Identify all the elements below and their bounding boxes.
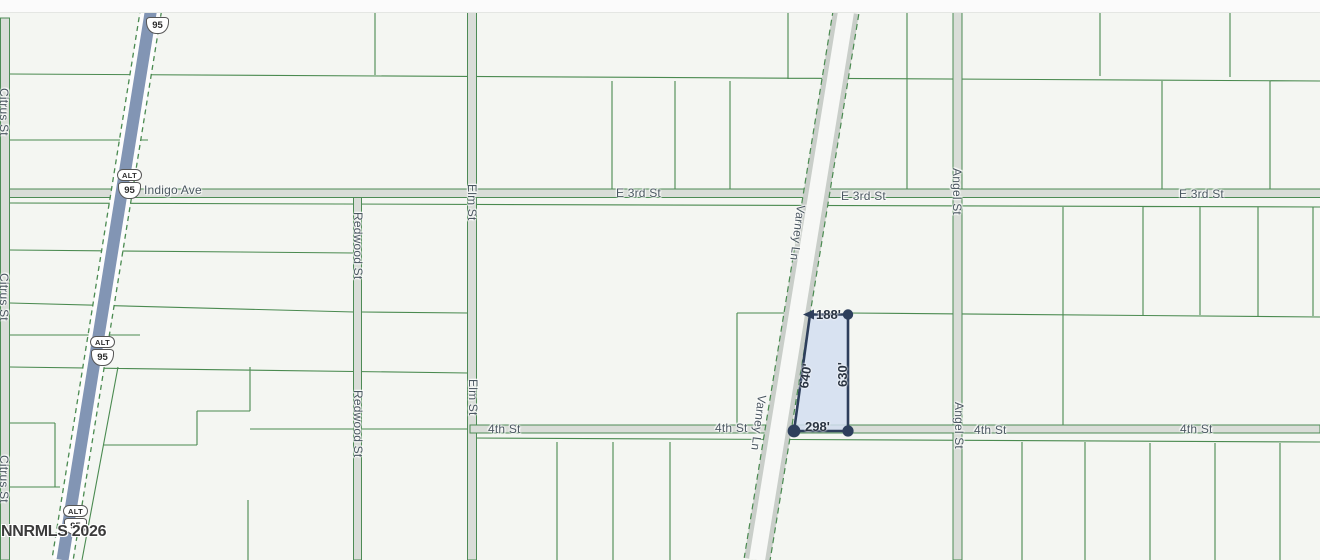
street-label-e-3rd-st-1: E 3rd St: [616, 186, 661, 200]
parcel-lines-layer: [10, 13, 1320, 560]
parcel-vertex-dot: [842, 425, 853, 436]
street-label-angel-st-1: Angel St: [950, 168, 964, 215]
street-label-indigo-ave: Indigo Ave: [144, 183, 202, 197]
street-label-4th-st-4: 4th St: [1180, 422, 1213, 436]
street-label-citrus-st-3: Citrus St: [0, 455, 11, 503]
dimension-label-bottom: 298': [805, 419, 830, 434]
parcel-vertex-dot: [843, 309, 853, 319]
map-canvas: [0, 0, 1320, 560]
alt-banner-icon: ALT: [90, 336, 115, 348]
dimension-label-top: 188': [816, 307, 841, 322]
road-e-3rd-st: [10, 189, 1320, 198]
road-angel-st: [953, 12, 962, 560]
dimension-label-right: 630': [835, 362, 850, 387]
parcel-vertex-dot: [788, 425, 801, 438]
street-label-4th-st-2: 4th St: [715, 421, 748, 435]
roads-layer: [1, 12, 1320, 560]
parcel-map[interactable]: Citrus St Citrus St Citrus St Indigo Ave…: [0, 0, 1320, 560]
street-label-citrus-st-1: Citrus St: [0, 88, 11, 136]
alt-banner-icon: ALT: [63, 505, 88, 517]
street-label-e-3rd-st-3: E 3rd St: [1179, 187, 1224, 201]
street-label-citrus-st-2: Citrus St: [0, 273, 11, 321]
image-top-strip: [0, 0, 1320, 13]
street-label-e-3rd-st-2: E 3rd St: [841, 189, 886, 203]
street-label-elm-st-1: Elm St: [465, 184, 479, 221]
road-varney-ln: [744, 10, 859, 560]
street-label-elm-st-2: Elm St: [466, 379, 480, 416]
street-label-4th-st-3: 4th St: [974, 423, 1007, 437]
mls-watermark: NNRMLS 2026: [1, 523, 106, 541]
street-label-angel-st-2: Angel St: [952, 402, 966, 449]
street-label-redwood-st-2: Redwood St: [351, 390, 365, 457]
street-label-4th-st-1: 4th St: [488, 422, 521, 436]
road-elm-st: [468, 12, 477, 560]
highway-us95-alt: [52, 8, 161, 560]
alt-banner-icon: ALT: [117, 169, 142, 181]
street-label-redwood-st-1: Redwood St: [351, 212, 365, 279]
